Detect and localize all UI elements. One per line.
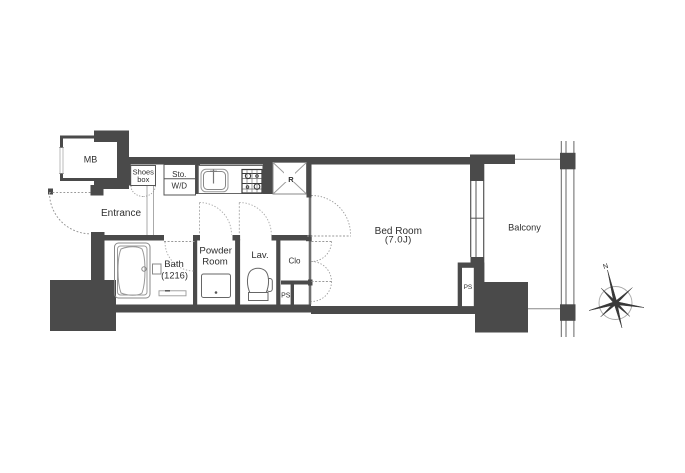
svg-text:Bath: Bath xyxy=(164,259,184,270)
svg-text:PS: PS xyxy=(281,293,291,300)
svg-text:Clo: Clo xyxy=(288,257,301,266)
svg-text:box: box xyxy=(137,175,149,184)
svg-text:Room: Room xyxy=(202,256,228,267)
svg-text:Sto.: Sto. xyxy=(172,170,186,179)
svg-text:Lav.: Lav. xyxy=(251,250,268,261)
svg-text:R: R xyxy=(288,175,294,184)
svg-text:MB: MB xyxy=(84,155,98,165)
svg-text:Balcony: Balcony xyxy=(508,223,541,233)
svg-text:(7.0J): (7.0J) xyxy=(385,235,412,246)
svg-text:PS: PS xyxy=(464,284,473,291)
svg-text:Powder: Powder xyxy=(199,246,232,257)
svg-text:W/D: W/D xyxy=(172,182,188,191)
svg-text:Entrance: Entrance xyxy=(101,208,141,219)
svg-text:(1216): (1216) xyxy=(161,271,188,281)
